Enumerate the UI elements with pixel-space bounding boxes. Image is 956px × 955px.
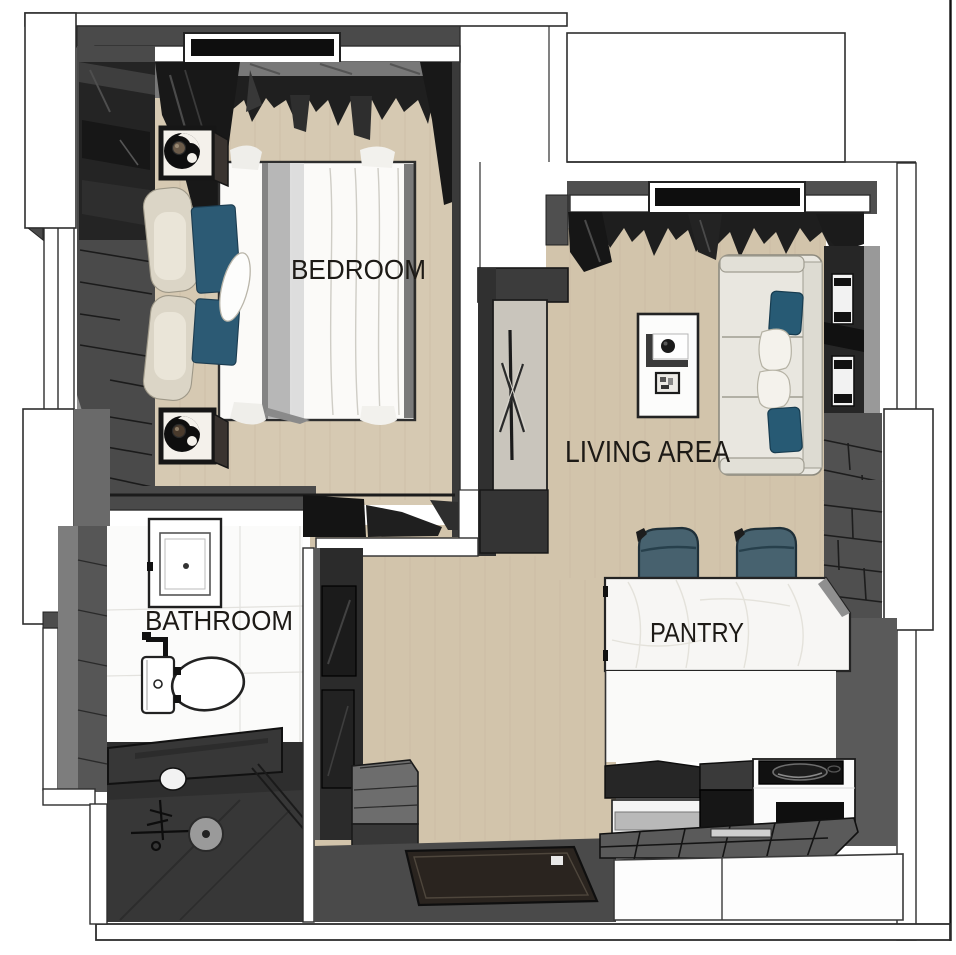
svg-text:PANTRY: PANTRY xyxy=(650,617,744,648)
svg-text:BEDROOM: BEDROOM xyxy=(291,254,426,285)
svg-text:BATHROOM: BATHROOM xyxy=(145,605,293,636)
svg-text:LIVING AREA: LIVING AREA xyxy=(565,434,730,469)
